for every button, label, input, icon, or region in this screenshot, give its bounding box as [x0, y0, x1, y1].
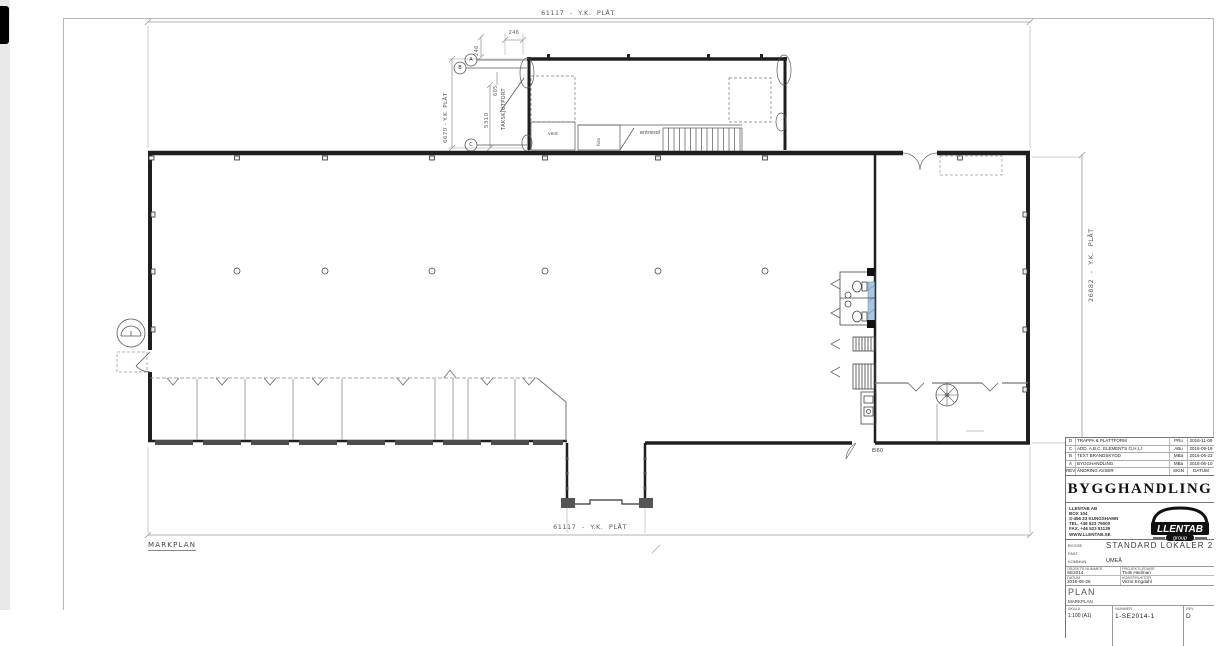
plan-subtype-label: MARKPLAN	[1066, 599, 1214, 606]
left-entrance-feature	[117, 319, 150, 372]
dim-5310-label: 5310	[484, 112, 490, 128]
main-hall-walls	[148, 151, 1030, 443]
kommun-value: UMEÅ	[1106, 558, 1122, 564]
takskjutport-label: TAKSKJUTPORT	[501, 88, 507, 130]
rev-desc: TEXT BRANDSKYDD	[1076, 453, 1170, 460]
sanitary-block	[831, 268, 876, 424]
rev-desc: ADD. A,B,C, ELEMENTS G,H,I,J	[1076, 446, 1170, 453]
detail-bubble-b: B	[455, 65, 465, 71]
rev-sign: PRu	[1170, 438, 1188, 445]
drawing-number: 1-SE2014-1	[1115, 613, 1183, 620]
dim-246-horizontal-label: 246	[502, 30, 526, 36]
rev-sign: ABu	[1170, 446, 1188, 453]
sheet-id-row: SKALA 1:100 (A1) NUMMER 1-SE2014-1 REV D	[1066, 606, 1214, 646]
revision-row: D TRAPPA & PLATTFORM PRu 2016-11-09	[1066, 438, 1214, 446]
bygge-label: BYGGE	[1066, 543, 1106, 548]
meta-grid: OBJEKTS NUMMER SE2014 PROJEKTLEDARE Trul…	[1066, 567, 1214, 586]
rev-letter: B	[1066, 453, 1076, 460]
bygge-row: BYGGE STANDARD LOKALER 2	[1066, 540, 1214, 551]
room-label-entresol: entresol	[628, 130, 672, 136]
skala-value: 1:100 (A1)	[1068, 613, 1112, 619]
logo-text: LLENTAB	[1157, 524, 1203, 535]
dim-annex-height-label: 6670 - Y.K. PLÅT	[443, 93, 449, 143]
konstruktor-value: Victor Engdahl	[1122, 580, 1214, 585]
nummer-cell: NUMMER 1-SE2014-1	[1113, 606, 1184, 646]
floor-plan-drawing	[0, 0, 1220, 610]
kommun-label: KOMMUN	[1066, 559, 1106, 564]
interior-columns	[234, 268, 768, 274]
skala-cell: SKALA 1:100 (A1)	[1066, 606, 1113, 646]
rev-letter: A	[1066, 461, 1076, 468]
detail-bubble-c: C	[466, 142, 476, 148]
dim-246-vertical-label: 246	[474, 45, 480, 56]
wall-pilasters	[149, 156, 1027, 392]
company-line: WWW.LLENTAB.SE	[1069, 532, 1145, 537]
dim-bottom-label: 61117 - Y.K. PLÅT	[500, 523, 680, 531]
rev-header-sign: SIGN	[1170, 468, 1188, 475]
room-label-vent: vent	[538, 132, 568, 137]
rev-date: 2016-06-23	[1188, 453, 1214, 460]
rev-date: 2016-09-19	[1188, 446, 1214, 453]
rev-letter: C	[1066, 446, 1076, 453]
revision-row: B TEXT BRANDSKYDD MBa 2016-06-23	[1066, 453, 1214, 461]
company-address: LLENTAB AB BOX 104 S-456 23 KUNGSHAMN TE…	[1066, 503, 1145, 539]
door-label-ei60: EI60	[872, 448, 883, 454]
title-block: D TRAPPA & PLATTFORM PRu 2016-11-09 C AD…	[1065, 437, 1214, 638]
objekt-cell: OBJEKTS NUMMER SE2014	[1066, 567, 1121, 576]
misc-marks	[652, 545, 660, 553]
rev-letter: D	[1066, 438, 1076, 445]
rev-value: D	[1186, 613, 1214, 620]
llentab-logo: LLENTAB group	[1145, 503, 1214, 539]
rev-header-desc: ÄNDRING AVSER	[1076, 468, 1170, 475]
revision-table: D TRAPPA & PLATTFORM PRu 2016-11-09 C AD…	[1066, 438, 1214, 476]
fast-label: FAST.	[1066, 551, 1079, 556]
dim-top-label: 61117 - Y.K. PLÅT	[488, 9, 668, 17]
rev-cell: REV D	[1184, 606, 1214, 646]
rev-date: 2016-06-10	[1188, 461, 1214, 468]
company-section: LLENTAB AB BOX 104 S-456 23 KUNGSHAMN TE…	[1066, 503, 1214, 540]
datum-cell: DATUM 2016-05-26	[1066, 576, 1121, 585]
plan-type-label: PLAN	[1066, 586, 1214, 599]
annex-entresol	[520, 54, 791, 152]
drawing-sheet: { "plan": { "dim_top": "61117 - Y.K. PLÅ…	[0, 0, 1220, 610]
rev-sign: MBa	[1170, 453, 1188, 460]
dimension-lines	[145, 19, 1085, 538]
project-name: STANDARD LOKALER 2	[1106, 541, 1213, 550]
window-band	[155, 440, 563, 445]
konstruktor-cell: KONSTRUKTÖR Victor Engdahl	[1121, 576, 1214, 585]
rev-header-rev: REV	[1066, 468, 1076, 475]
kommun-row: KOMMUN UMEÅ	[1066, 557, 1214, 567]
document-type-title: BYGGHANDLING	[1066, 476, 1214, 503]
rev-header-date: DATUM	[1188, 468, 1214, 475]
plan-title-markplan: MARKPLAN	[148, 541, 196, 551]
revision-row: C ADD. A,B,C, ELEMENTS G,H,I,J ABu 2016-…	[1066, 446, 1214, 454]
dim-right-label: 26882 - Y.K. PLÅT	[1087, 228, 1095, 302]
rev-desc: BYGGHANDLING	[1076, 461, 1170, 468]
rev-sign: MBa	[1170, 461, 1188, 468]
dim-605-label: 605	[493, 85, 499, 96]
rev-desc: TRAPPA & PLATTFORM	[1076, 438, 1170, 445]
datum-value: 2016-05-26	[1067, 580, 1120, 585]
detail-bubble-a: A	[466, 57, 476, 63]
storage-rooms	[150, 370, 566, 441]
room-label-hiss: hiss	[596, 138, 601, 146]
rev-date: 2016-11-09	[1188, 438, 1214, 445]
entrance-alcove	[561, 443, 653, 508]
projektledare-cell: PROJEKTLEDARE Truls Hedman	[1121, 567, 1214, 576]
revision-header-row: REV ÄNDRING AVSER SIGN DATUM	[1066, 468, 1214, 476]
revision-row: A BYGGHANDLING MBa 2016-06-10	[1066, 461, 1214, 469]
